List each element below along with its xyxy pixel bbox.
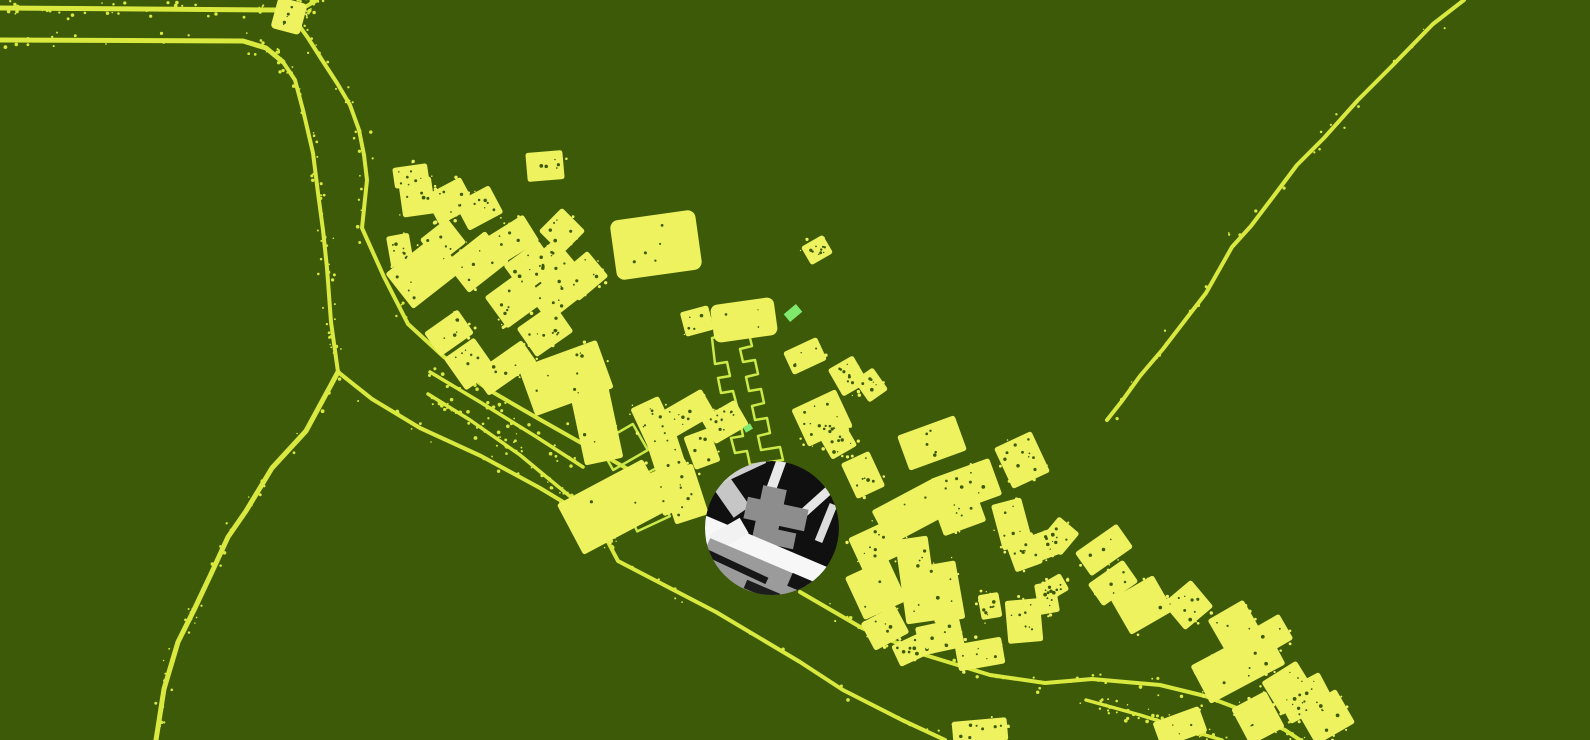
noise-dot bbox=[1310, 151, 1312, 153]
noise-dot bbox=[453, 311, 456, 314]
noise-hole bbox=[913, 610, 915, 612]
noise-dot bbox=[279, 57, 282, 60]
noise-dot bbox=[813, 431, 817, 435]
noise-dot bbox=[631, 566, 634, 569]
noise-hole bbox=[1248, 628, 1250, 630]
noise-dot bbox=[122, 39, 125, 42]
noise-dot bbox=[858, 393, 862, 397]
noise-dot bbox=[1197, 304, 1200, 307]
noise-dot bbox=[550, 486, 553, 489]
noise-dot bbox=[266, 51, 267, 52]
noise-dot bbox=[1094, 592, 1097, 595]
noise-dot bbox=[569, 242, 572, 245]
noise-dot bbox=[1270, 638, 1272, 640]
noise-hole bbox=[909, 647, 912, 650]
noise-hole bbox=[1024, 543, 1027, 546]
noise-hole bbox=[537, 333, 538, 334]
noise-dot bbox=[1034, 542, 1037, 545]
noise-dot bbox=[1345, 729, 1347, 731]
noise-dot bbox=[49, 9, 52, 12]
noise-dot bbox=[607, 360, 609, 362]
noise-dot bbox=[1279, 712, 1282, 715]
noise-dot bbox=[926, 647, 928, 649]
noise-hole bbox=[896, 647, 899, 650]
noise-hole bbox=[1223, 681, 1226, 684]
noise-hole bbox=[573, 284, 575, 286]
noise-hole bbox=[590, 500, 593, 503]
noise-dot bbox=[849, 616, 853, 620]
noise-dot bbox=[883, 645, 887, 649]
noise-dot bbox=[508, 223, 510, 225]
noise-dot bbox=[1067, 578, 1069, 580]
noise-dot bbox=[1017, 595, 1020, 598]
noise-dot bbox=[276, 4, 277, 5]
noise-dot bbox=[491, 293, 493, 295]
noise-hole bbox=[864, 553, 865, 554]
noise-dot bbox=[702, 394, 706, 398]
noise-dot bbox=[1042, 543, 1044, 545]
noise-hole bbox=[828, 430, 831, 433]
noise-dot bbox=[454, 409, 456, 411]
noise-dot bbox=[205, 581, 207, 583]
noise-dot bbox=[201, 588, 204, 591]
noise-dot bbox=[545, 441, 547, 443]
noise-hole bbox=[990, 606, 992, 608]
noise-dot bbox=[311, 179, 314, 182]
noise-dot bbox=[105, 43, 107, 45]
noise-dot bbox=[632, 404, 634, 406]
noise-hole bbox=[936, 596, 940, 600]
noise-dot bbox=[258, 7, 259, 8]
noise-dot bbox=[402, 184, 406, 188]
noise-dot bbox=[112, 3, 115, 6]
noise-hole bbox=[470, 354, 472, 356]
noise-hole bbox=[473, 203, 475, 205]
noise-hole bbox=[680, 484, 681, 485]
noise-dot bbox=[171, 40, 174, 43]
noise-hole bbox=[664, 432, 666, 434]
noise-dot bbox=[468, 212, 471, 215]
noise-dot bbox=[248, 496, 250, 498]
noise-dot bbox=[1001, 643, 1003, 645]
noise-hole bbox=[982, 608, 985, 611]
noise-hole bbox=[723, 410, 725, 412]
noise-hole bbox=[960, 485, 964, 489]
noise-dot bbox=[482, 422, 485, 425]
noise-dot bbox=[277, 61, 280, 64]
noise-hole bbox=[921, 557, 923, 559]
noise-dot bbox=[1019, 532, 1021, 534]
noise-dot bbox=[846, 698, 850, 702]
noise-hole bbox=[842, 370, 845, 373]
noise-hole bbox=[1303, 700, 1305, 702]
noise-hole bbox=[981, 485, 985, 489]
noise-dot bbox=[1156, 677, 1159, 680]
noise-hole bbox=[955, 477, 958, 480]
noise-hole bbox=[1216, 622, 1218, 624]
noise-dot bbox=[160, 721, 164, 725]
noise-dot bbox=[1108, 564, 1110, 566]
noise-hole bbox=[576, 372, 578, 374]
noise-hole bbox=[1190, 724, 1192, 726]
noise-dot bbox=[894, 560, 896, 562]
noise-dot bbox=[1212, 733, 1215, 736]
noise-hole bbox=[1028, 456, 1030, 458]
noise-dot bbox=[1259, 652, 1262, 655]
noise-dot bbox=[1291, 732, 1294, 735]
noise-hole bbox=[837, 451, 839, 453]
noise-dot bbox=[214, 12, 217, 15]
noise-hole bbox=[803, 411, 806, 414]
noise-hole bbox=[819, 251, 822, 254]
noise-dot bbox=[406, 316, 408, 318]
noise-hole bbox=[547, 375, 549, 377]
noise-dot bbox=[540, 474, 543, 477]
noise-dot bbox=[51, 36, 53, 38]
noise-hole bbox=[1251, 724, 1253, 726]
noise-hole bbox=[402, 252, 404, 254]
noise-hole bbox=[580, 352, 581, 353]
noise-dot bbox=[816, 437, 818, 439]
noise-hole bbox=[1298, 693, 1301, 696]
noise-hole bbox=[958, 508, 960, 510]
noise-dot bbox=[492, 405, 495, 408]
noise-dot bbox=[492, 436, 493, 437]
noise-dot bbox=[326, 323, 328, 325]
noise-dot bbox=[254, 53, 257, 56]
noise-hole bbox=[558, 299, 560, 301]
noise-hole bbox=[933, 453, 936, 456]
noise-dot bbox=[995, 675, 999, 679]
noise-dot bbox=[505, 452, 508, 455]
noise-dot bbox=[576, 238, 578, 240]
noise-dot bbox=[337, 365, 339, 367]
noise-dot bbox=[327, 271, 330, 274]
noise-dot bbox=[105, 9, 108, 12]
noise-dot bbox=[1040, 592, 1043, 595]
noise-dot bbox=[556, 460, 558, 462]
segmentation-map bbox=[0, 0, 1590, 740]
noise-dot bbox=[417, 244, 419, 246]
noise-dot bbox=[7, 10, 11, 14]
noise-dot bbox=[851, 455, 854, 458]
noise-dot bbox=[53, 45, 55, 47]
noise-hole bbox=[803, 423, 805, 425]
noise-dot bbox=[428, 374, 431, 377]
noise-dot bbox=[226, 10, 228, 12]
noise-hole bbox=[948, 625, 952, 629]
noise-dot bbox=[333, 238, 335, 240]
noise-hole bbox=[875, 620, 877, 622]
noise-dot bbox=[719, 408, 722, 411]
noise-dot bbox=[74, 34, 77, 37]
noise-hole bbox=[461, 266, 463, 268]
noise-dot bbox=[611, 546, 615, 550]
noise-hole bbox=[500, 303, 503, 306]
noise-hole bbox=[929, 430, 931, 432]
noise-dot bbox=[399, 185, 401, 187]
noise-dot bbox=[671, 588, 674, 591]
noise-dot bbox=[1202, 691, 1204, 693]
noise-dot bbox=[1008, 726, 1010, 728]
noise-dot bbox=[1410, 45, 1413, 48]
noise-hole bbox=[930, 636, 934, 640]
noise-dot bbox=[846, 616, 848, 618]
noise-hole bbox=[460, 193, 463, 196]
noise-dot bbox=[1158, 354, 1161, 357]
noise-dot bbox=[356, 225, 360, 229]
noise-dot bbox=[454, 176, 457, 179]
noise-hole bbox=[504, 372, 507, 375]
noise-dot bbox=[649, 494, 652, 497]
noise-dot bbox=[1107, 698, 1109, 700]
noise-dot bbox=[1446, 14, 1448, 16]
map-viewport bbox=[0, 0, 1590, 740]
noise-dot bbox=[513, 376, 514, 377]
noise-dot bbox=[834, 425, 837, 428]
noise-dot bbox=[26, 37, 30, 41]
noise-hole bbox=[453, 333, 456, 336]
noise-dot bbox=[527, 461, 529, 463]
noise-hole bbox=[1169, 603, 1170, 604]
noise-hole bbox=[992, 605, 994, 607]
noise-dot bbox=[358, 199, 360, 201]
noise-dot bbox=[14, 13, 16, 15]
noise-dot bbox=[107, 9, 109, 11]
noise-dot bbox=[410, 265, 411, 266]
noise-dot bbox=[955, 531, 958, 534]
noise-hole bbox=[908, 651, 911, 654]
noise-hole bbox=[1051, 533, 1055, 537]
noise-dot bbox=[1211, 654, 1213, 656]
noise-dot bbox=[829, 603, 830, 604]
noise-dot bbox=[278, 51, 281, 54]
noise-hole bbox=[405, 257, 407, 259]
noise-hole bbox=[700, 314, 704, 318]
noise-dot bbox=[937, 497, 938, 498]
noise-dot bbox=[1273, 671, 1275, 673]
noise-dot bbox=[111, 12, 112, 13]
building bbox=[275, 2, 302, 31]
noise-dot bbox=[334, 318, 336, 320]
noise-dot bbox=[310, 8, 312, 10]
noise-hole bbox=[577, 392, 578, 393]
noise-dot bbox=[1180, 695, 1183, 698]
noise-hole bbox=[455, 319, 456, 320]
noise-hole bbox=[861, 382, 864, 385]
noise-hole bbox=[987, 614, 988, 615]
noise-hole bbox=[1044, 535, 1047, 538]
noise-dot bbox=[673, 587, 676, 590]
noise-hole bbox=[818, 254, 820, 256]
noise-hole bbox=[1159, 606, 1163, 610]
noise-dot bbox=[460, 415, 462, 417]
noise-dot bbox=[1003, 551, 1006, 554]
noise-dot bbox=[434, 185, 436, 187]
noise-hole bbox=[856, 484, 858, 486]
noise-hole bbox=[758, 326, 760, 328]
noise-dot bbox=[503, 222, 505, 224]
noise-dot bbox=[454, 213, 457, 216]
noise-dot bbox=[496, 445, 498, 447]
noise-dot bbox=[583, 341, 586, 344]
noise-dot bbox=[568, 456, 571, 459]
noise-hole bbox=[951, 600, 953, 602]
noise-dot bbox=[403, 232, 405, 234]
noise-dot bbox=[536, 358, 538, 360]
noise-dot bbox=[317, 51, 321, 55]
noise-dot bbox=[528, 344, 531, 347]
noise-dot bbox=[1164, 330, 1166, 332]
noise-dot bbox=[812, 446, 813, 447]
noise-hole bbox=[1046, 597, 1048, 599]
noise-hole bbox=[553, 222, 555, 224]
noise-dot bbox=[260, 479, 263, 482]
noise-dot bbox=[474, 436, 478, 440]
noise-hole bbox=[1050, 549, 1051, 550]
noise-hole bbox=[914, 639, 916, 641]
noise-dot bbox=[498, 436, 500, 438]
noise-dot bbox=[1165, 342, 1168, 345]
noise-hole bbox=[1325, 729, 1328, 732]
noise-hole bbox=[1298, 713, 1300, 715]
noise-dot bbox=[1346, 705, 1349, 708]
noise-hole bbox=[680, 475, 683, 478]
noise-dot bbox=[365, 186, 367, 188]
noise-hole bbox=[873, 554, 876, 557]
noise-dot bbox=[1089, 570, 1092, 573]
noise-hole bbox=[1034, 554, 1037, 557]
noise-dot bbox=[1228, 234, 1230, 236]
noise-hole bbox=[872, 480, 875, 483]
noise-dot bbox=[333, 273, 336, 276]
noise-hole bbox=[633, 260, 636, 263]
noise-dot bbox=[360, 188, 363, 191]
noise-hole bbox=[1024, 611, 1027, 614]
noise-dot bbox=[402, 302, 405, 305]
noise-dot bbox=[1075, 678, 1077, 680]
noise-dot bbox=[369, 130, 372, 133]
noise-dot bbox=[1282, 186, 1285, 189]
noise-dot bbox=[347, 86, 349, 88]
noise-dot bbox=[412, 160, 415, 163]
noise-dot bbox=[800, 250, 801, 251]
noise-dot bbox=[1320, 131, 1323, 134]
noise-hole bbox=[1179, 733, 1180, 734]
noise-dot bbox=[196, 617, 198, 619]
noise-dot bbox=[645, 461, 648, 464]
noise-hole bbox=[864, 477, 866, 479]
noise-dot bbox=[291, 71, 293, 73]
noise-hole bbox=[918, 604, 920, 606]
noise-hole bbox=[710, 418, 712, 420]
noise-dot bbox=[458, 387, 461, 390]
noise-dot bbox=[476, 426, 478, 428]
noise-dot bbox=[989, 593, 991, 595]
noise-hole bbox=[659, 243, 661, 245]
noise-hole bbox=[494, 371, 497, 374]
noise-hole bbox=[690, 493, 692, 495]
noise-dot bbox=[1116, 417, 1119, 420]
noise-dot bbox=[81, 6, 83, 8]
noise-hole bbox=[396, 275, 399, 278]
noise-dot bbox=[978, 599, 981, 602]
noise-hole bbox=[506, 309, 508, 311]
noise-dot bbox=[876, 613, 878, 615]
noise-hole bbox=[862, 478, 864, 480]
noise-dot bbox=[1016, 549, 1018, 551]
noise-hole bbox=[1297, 677, 1299, 679]
noise-hole bbox=[870, 388, 874, 392]
building bbox=[718, 305, 771, 336]
noise-dot bbox=[345, 101, 347, 103]
noise-hole bbox=[1102, 548, 1106, 552]
noise-dot bbox=[1213, 736, 1216, 739]
noise-dot bbox=[1041, 582, 1044, 585]
noise-dot bbox=[432, 196, 434, 198]
noise-dot bbox=[1107, 569, 1110, 572]
noise-dot bbox=[16, 5, 19, 8]
noise-hole bbox=[878, 580, 881, 583]
noise-dot bbox=[957, 573, 959, 575]
noise-hole bbox=[851, 381, 854, 384]
noise-dot bbox=[326, 61, 329, 64]
noise-dot bbox=[1104, 681, 1107, 684]
noise-hole bbox=[868, 377, 871, 380]
noise-hole bbox=[518, 274, 522, 278]
noise-dot bbox=[1143, 578, 1146, 581]
noise-hole bbox=[949, 578, 951, 580]
noise-hole bbox=[1313, 681, 1314, 682]
noise-hole bbox=[1025, 625, 1027, 627]
noise-dot bbox=[1393, 60, 1396, 63]
building bbox=[618, 218, 693, 271]
noise-hole bbox=[866, 478, 870, 482]
noise-dot bbox=[207, 15, 210, 18]
noise-dot bbox=[1238, 233, 1241, 236]
noise-dot bbox=[330, 382, 332, 384]
noise-hole bbox=[1029, 453, 1031, 455]
noise-hole bbox=[1279, 628, 1281, 630]
noise-dot bbox=[506, 424, 510, 428]
noise-hole bbox=[919, 560, 921, 562]
noise-dot bbox=[598, 285, 601, 288]
noise-dot bbox=[555, 455, 558, 458]
noise-dot bbox=[537, 431, 541, 435]
noise-hole bbox=[557, 163, 560, 166]
noise-dot bbox=[333, 352, 335, 354]
noise-dot bbox=[883, 475, 886, 478]
noise-hole bbox=[1047, 591, 1050, 594]
noise-dot bbox=[491, 456, 493, 458]
noise-hole bbox=[644, 424, 646, 426]
noise-dot bbox=[320, 258, 323, 261]
noise-dot bbox=[313, 134, 316, 137]
noise-dot bbox=[323, 194, 326, 197]
noise-hole bbox=[542, 264, 545, 267]
noise-dot bbox=[574, 459, 577, 462]
noise-dot bbox=[1039, 616, 1040, 617]
noise-dot bbox=[717, 324, 719, 326]
noise-hole bbox=[986, 658, 987, 659]
noise-dot bbox=[303, 25, 305, 27]
noise-dot bbox=[566, 422, 569, 425]
noise-dot bbox=[510, 279, 511, 280]
noise-dot bbox=[747, 333, 749, 335]
noise-dot bbox=[318, 194, 320, 196]
noise-dot bbox=[1225, 736, 1227, 738]
noise-dot bbox=[360, 130, 362, 132]
